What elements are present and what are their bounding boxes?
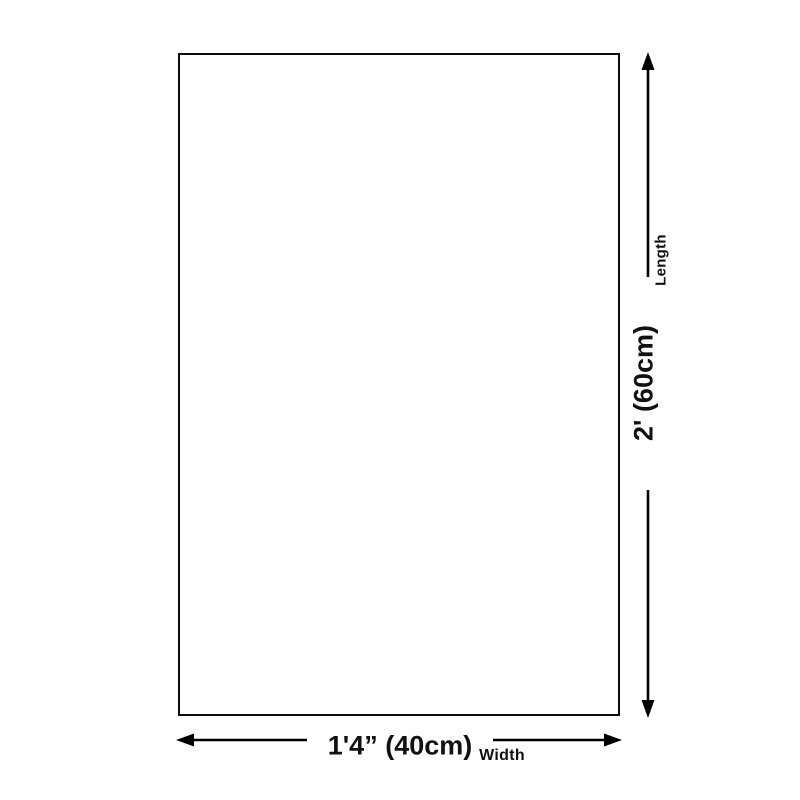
length-value-label: 2' (60cm) <box>631 325 658 441</box>
product-outline-rectangle <box>178 53 620 716</box>
width-arrow-right-arrowhead <box>604 734 622 747</box>
dimension-diagram: 2' (60cm) Length 1'4” (40cm) Width <box>0 0 800 800</box>
width-axis-label: Width <box>479 748 525 764</box>
length-arrow-down-arrowhead <box>642 700 655 718</box>
width-arrow-left-arrowhead <box>176 734 194 747</box>
length-arrow-up-arrowhead <box>642 52 655 70</box>
length-axis-label: Length <box>654 234 669 286</box>
width-value-label: 1'4” (40cm) <box>328 733 473 760</box>
